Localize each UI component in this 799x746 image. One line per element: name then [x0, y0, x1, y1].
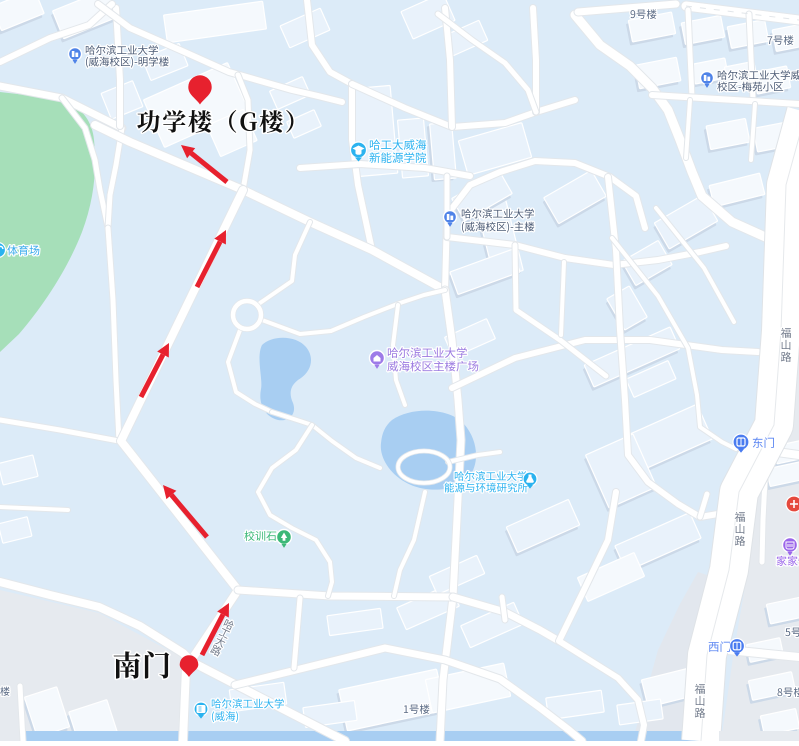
svg-text:新能源学院: 新能源学院 [369, 150, 427, 166]
svg-text:威海校区主楼广场: 威海校区主楼广场 [387, 359, 479, 375]
svg-text:7号楼: 7号楼 [767, 33, 794, 48]
svg-text:能源与环境研究所: 能源与环境研究所 [444, 481, 528, 496]
svg-text:校训石: 校训石 [244, 528, 277, 544]
svg-text:校区-梅苑小区: 校区-梅苑小区 [717, 80, 784, 95]
svg-text:南门: 南门 [113, 644, 172, 685]
svg-text:西门: 西门 [708, 639, 731, 655]
svg-text:东门: 东门 [752, 435, 775, 451]
svg-text:8号楼: 8号楼 [777, 685, 799, 700]
svg-text:路: 路 [695, 705, 706, 721]
svg-text:功学楼（G楼）: 功学楼（G楼） [137, 103, 311, 138]
svg-text:体育场: 体育场 [7, 243, 40, 259]
svg-text:1号楼: 1号楼 [403, 702, 430, 717]
svg-text:路: 路 [735, 533, 746, 549]
svg-text:(威海): (威海) [211, 709, 239, 724]
svg-text:(威海校区)-主楼: (威海校区)-主楼 [461, 220, 535, 235]
svg-text:(威海校区)-明学楼: (威海校区)-明学楼 [85, 55, 170, 70]
svg-text:路: 路 [781, 349, 792, 365]
svg-text:楼: 楼 [0, 683, 10, 698]
svg-text:家家悦: 家家悦 [776, 553, 799, 569]
svg-text:9号楼: 9号楼 [630, 7, 657, 22]
svg-text:5号: 5号 [785, 625, 799, 640]
